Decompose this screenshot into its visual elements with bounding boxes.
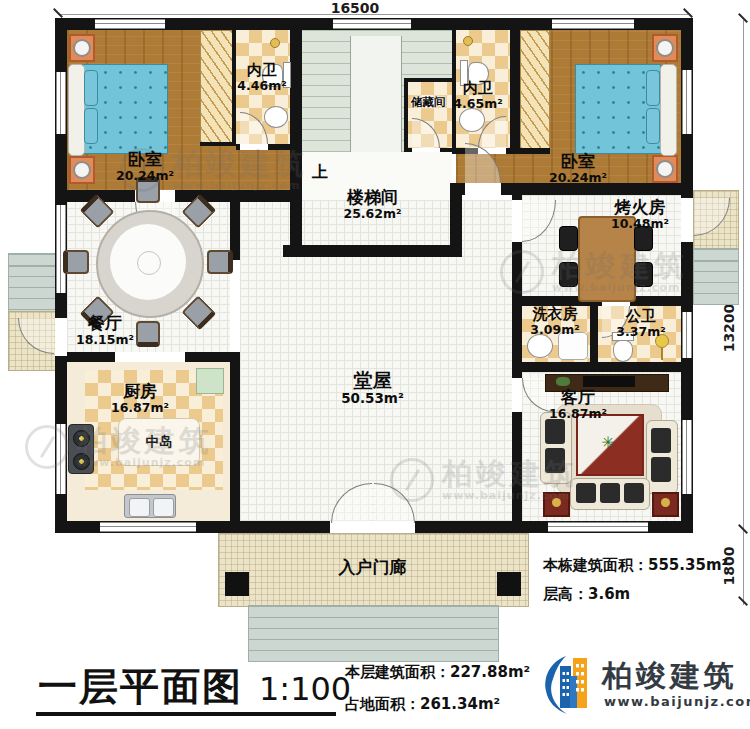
wall-dining-kitchen-b (185, 352, 230, 362)
room-area: 16.87m² (538, 407, 618, 421)
room-area: 25.62m² (330, 207, 415, 221)
floor-plan-canvas: 16500 13200 1800 (0, 0, 750, 729)
wall-laundry-living (512, 362, 693, 372)
info-floor-height: 层高：3.6m (543, 585, 630, 604)
window-right-bedroomR (682, 70, 692, 134)
pillow (84, 70, 98, 106)
brand-logo-svg (540, 650, 598, 718)
title-underline (36, 712, 336, 716)
sofa-cushion (545, 419, 565, 444)
pillow (646, 70, 660, 106)
wall-kitchen-hall (230, 352, 240, 521)
room-name: 内卫 (228, 62, 296, 79)
pillow (646, 108, 660, 144)
room-area: 50.53m² (330, 391, 415, 406)
dining-table-center (137, 251, 161, 275)
sink-basin (129, 498, 150, 517)
room-name: 洗衣房 (518, 306, 592, 323)
sofa-cushion (600, 483, 620, 503)
fire-room-chair (559, 262, 578, 287)
dim-tick (683, 8, 693, 18)
sofa-cushion (651, 428, 671, 453)
room-name: 卧室 (528, 152, 628, 171)
tv-deco-plant (556, 377, 570, 386)
title-block: 一层平面图 1:100 (38, 660, 351, 714)
side-table (652, 492, 679, 517)
room-area: 20.24m² (528, 171, 628, 185)
fire-room-chair (559, 226, 578, 251)
plan-title: 一层平面图 (38, 660, 243, 714)
stair-well (350, 36, 402, 165)
dim-tick (53, 8, 63, 18)
fridge (196, 368, 224, 394)
room-label-fire-room: 烤火房 10.48m² (592, 198, 688, 231)
dimension-line-right (743, 20, 744, 605)
porch-column (497, 572, 521, 596)
window-top-bedroomL (95, 19, 165, 29)
sink-basin (153, 498, 174, 517)
stair-up-label: 上 (305, 163, 335, 181)
kitchen-island: 中岛 (118, 418, 200, 466)
room-name: 楼梯间 (330, 188, 415, 207)
brand-logo-icon (540, 650, 598, 718)
drain-stem (661, 348, 663, 360)
bed-right-headboard (660, 64, 677, 156)
sofa-cushion (576, 483, 596, 503)
nightstand (652, 155, 678, 183)
dimension-top: 16500 (320, 0, 390, 16)
window-right-living (682, 420, 692, 494)
wall-wardrobeL-bottom (200, 142, 236, 146)
plan-scale: 1:100 (259, 670, 351, 708)
dining-chair (63, 250, 89, 274)
room-area: 10.48m² (592, 217, 688, 231)
opening-bedroomR-door (465, 183, 501, 195)
room-area: 4.65m² (442, 97, 514, 111)
room-label-living: 客厅 16.87m² (538, 388, 618, 421)
footer-floor-area: 本层建筑面积：227.88m² (345, 663, 530, 682)
room-name: 卧室 (90, 150, 200, 169)
bed-left-headboard (68, 64, 85, 156)
room-label-kitchen: 厨房 16.87m² (95, 382, 185, 415)
toilet-bowl (613, 340, 633, 362)
window-bottom-living (548, 522, 648, 532)
dining-chair (207, 250, 233, 274)
plant-icon: ✳ (599, 434, 617, 452)
wall-stair-hall-bar (283, 245, 462, 257)
brand-name: 柏竣建筑 (602, 656, 738, 697)
room-area: 20.24m² (90, 169, 200, 183)
sofa-cushion (651, 457, 671, 482)
window-left-dining (56, 205, 66, 293)
porch-steps (248, 605, 499, 662)
porch-column (225, 572, 249, 596)
stove (68, 424, 94, 474)
footer-site-area: 占地面积：261.34m² (345, 695, 500, 714)
wardrobe-right (520, 30, 550, 150)
pillow (84, 108, 98, 144)
room-label-bath-left: 内卫 4.46m² (228, 62, 296, 93)
room-name: 客厅 (538, 388, 618, 407)
shower-fixture (270, 38, 280, 48)
room-label-hall: 堂屋 50.53m² (330, 370, 415, 406)
wall-storage-left (404, 78, 408, 148)
room-label-bath-right: 内卫 4.65m² (442, 80, 514, 111)
brand-url: www.baijunjz.com (604, 694, 750, 709)
window-top-bedroomR (552, 19, 634, 29)
room-name: 餐厅 (60, 314, 150, 333)
laundry-sink (527, 334, 553, 358)
opening-bathL-door (240, 144, 268, 150)
shower-fixture (463, 36, 473, 46)
wall-hall-right (512, 195, 522, 521)
room-area: 18.15m² (60, 333, 150, 347)
right-porch-steps (693, 248, 739, 305)
info-total-area: 本栋建筑面积：555.35m² (543, 556, 728, 575)
burner (73, 430, 90, 447)
room-label-public-bath: 公卫 3.37m² (606, 308, 676, 339)
room-name: 堂屋 (330, 370, 415, 391)
side-table (543, 492, 570, 517)
window-top-stair (333, 19, 411, 29)
kitchen-sink (124, 494, 176, 518)
room-name: 烤火房 (592, 198, 688, 217)
wall-hall-connector (450, 183, 462, 257)
left-porch-steps (8, 253, 56, 313)
room-area: 3.09m² (518, 323, 592, 337)
room-label-bedroom-left: 卧室 20.24m² (90, 150, 200, 183)
room-area: 3.37m² (606, 325, 676, 339)
sofa-cushion (545, 448, 565, 473)
fire-room-chair (634, 262, 653, 287)
room-label-laundry: 洗衣房 3.09m² (518, 306, 592, 337)
room-label-stairwell: 楼梯间 25.62m² (330, 188, 415, 221)
window-right-publicbath (682, 312, 692, 358)
window-bottom-kitchen (100, 522, 196, 532)
nightstand (652, 34, 678, 62)
room-area: 4.46m² (228, 79, 296, 93)
window-left-kitchen (56, 424, 66, 494)
room-area: 16.87m² (95, 401, 185, 415)
window-left-bedroomL (56, 72, 66, 134)
room-name: 内卫 (442, 80, 514, 97)
room-label-bedroom-right: 卧室 20.24m² (528, 152, 628, 185)
sofa-cushion (624, 483, 644, 503)
nightstand (69, 34, 95, 62)
sink-round (264, 106, 288, 128)
room-name: 公卫 (606, 308, 676, 325)
sink-round (459, 108, 485, 132)
room-label-porch: 入户门廊 (310, 558, 435, 577)
opening-storage-door (412, 148, 440, 152)
burner (73, 453, 90, 470)
opening-fire-room-door (512, 200, 522, 242)
opening-living-door (512, 378, 522, 412)
room-name: 厨房 (95, 382, 185, 401)
tv (583, 376, 635, 387)
room-label-dining: 餐厅 18.15m² (60, 314, 150, 347)
